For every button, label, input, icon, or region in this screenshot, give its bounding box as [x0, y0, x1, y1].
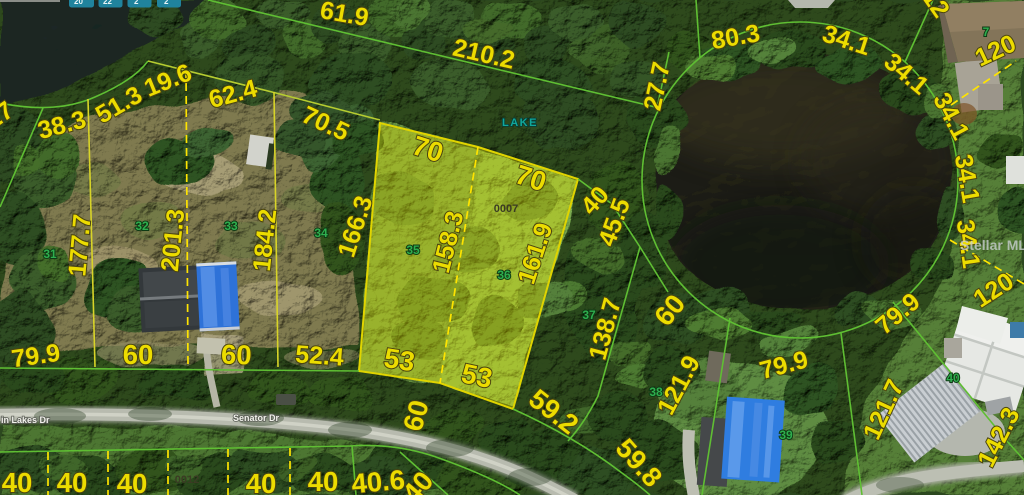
svg-text:LAKE: LAKE: [502, 117, 538, 129]
svg-text:Senator Dr: Senator Dr: [233, 413, 280, 423]
svg-text:22: 22: [103, 0, 112, 6]
svg-text:53: 53: [382, 342, 417, 377]
svg-text:177.7: 177.7: [63, 213, 96, 278]
svg-text:40: 40: [117, 468, 148, 495]
svg-text:40: 40: [2, 467, 33, 495]
svg-text:34: 34: [314, 226, 328, 240]
svg-text:2: 2: [134, 0, 139, 6]
svg-text:35: 35: [406, 243, 420, 257]
svg-text:52.4: 52.4: [294, 340, 345, 371]
svg-text:7: 7: [983, 25, 990, 39]
svg-text:Stellar MLS: Stellar MLS: [960, 237, 1024, 253]
svg-text:40: 40: [308, 466, 339, 495]
svg-text:40: 40: [946, 371, 960, 385]
svg-text:40: 40: [246, 468, 277, 495]
svg-text:20: 20: [74, 0, 83, 6]
svg-text:53: 53: [459, 357, 495, 394]
svg-text:38: 38: [649, 385, 663, 399]
svg-text:32: 32: [135, 219, 149, 233]
svg-text:60: 60: [123, 339, 154, 370]
svg-text:36: 36: [497, 268, 511, 282]
svg-text:0012: 0012: [175, 474, 199, 486]
svg-text:39: 39: [779, 428, 793, 442]
svg-text:37: 37: [582, 308, 596, 322]
svg-text:40: 40: [57, 467, 88, 495]
svg-text:in Lakes Dr: in Lakes Dr: [1, 415, 50, 425]
svg-text:0007: 0007: [494, 203, 518, 215]
svg-text:31: 31: [43, 247, 57, 261]
svg-text:60: 60: [221, 338, 253, 370]
svg-text:2: 2: [164, 0, 169, 6]
svg-text:33: 33: [224, 219, 238, 233]
